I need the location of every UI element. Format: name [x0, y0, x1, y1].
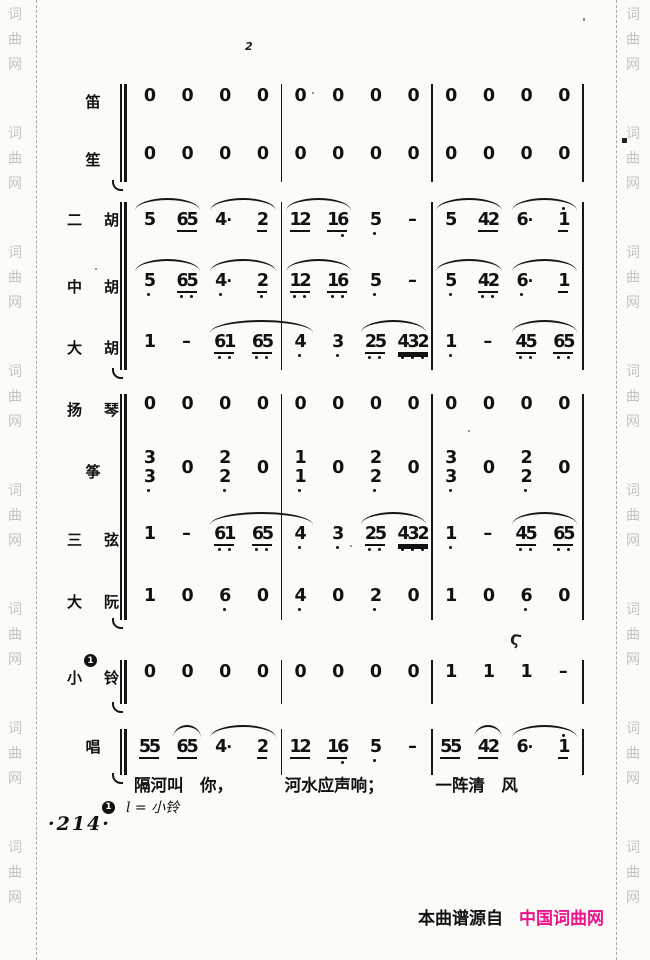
watermark-text: 词 [4, 246, 26, 260]
footer-brand-name: 中国词曲网 [519, 904, 604, 929]
note-digit: 0 [182, 663, 192, 682]
instrument-label-yangqin: 扬琴 [64, 399, 122, 420]
note-group: – [480, 525, 496, 544]
note-group: 65 [177, 738, 197, 759]
note-group: 1 [483, 663, 493, 682]
beat: 0 [318, 449, 356, 494]
bracket-hook [112, 702, 123, 713]
augmentation-dot: · [527, 272, 535, 291]
note-group: 16 [327, 211, 347, 232]
note-group: 5 [144, 211, 154, 230]
note-digit: 0 [219, 87, 229, 106]
beat: 0 [469, 587, 507, 613]
note-group: 0 [408, 449, 418, 487]
beat: 16 [318, 272, 356, 300]
slur-arc [210, 725, 276, 738]
beat: 4 [281, 525, 319, 553]
note-group: 0 [182, 87, 192, 106]
note-group: 0 [182, 663, 192, 682]
note-digit: 0 [370, 395, 380, 414]
beat: 2 [356, 587, 394, 613]
measure: 1–4565 [431, 525, 582, 553]
beat: 0 [394, 145, 432, 171]
note-digit: 6 [517, 272, 527, 291]
note-digit: 0 [521, 145, 531, 164]
staff-group: 扬琴000000000000筝330220110220330220三弦1–616… [60, 394, 590, 620]
note-group: 0 [370, 395, 380, 414]
beat: 4 [281, 333, 319, 361]
note-group: 0 [219, 663, 229, 682]
note-digit: 2 [418, 525, 428, 544]
note-digit: 1 [144, 333, 154, 352]
footnote-marker-badge: 1 [102, 801, 115, 814]
staff-group: 小铃100000000111– [60, 660, 590, 704]
watermark-text: 词 [622, 603, 644, 617]
watermark-text: 曲 [622, 152, 644, 166]
note-group: 65 [252, 525, 272, 546]
slur-arc [210, 320, 313, 333]
slur-arc [512, 198, 578, 211]
beat: 0 [318, 87, 356, 113]
watermark-text: 曲 [4, 509, 26, 523]
note-group: 1 [558, 738, 568, 759]
beat: 0 [243, 87, 281, 113]
watermark-text: 词 [4, 8, 26, 22]
octave-dot-below [223, 489, 226, 492]
slur-arc [210, 198, 276, 211]
beat: 45 [507, 525, 545, 553]
lyrics-measure-2: 河水应声响； [281, 772, 432, 796]
note-digit: 6 [337, 272, 347, 291]
octave-dot-below [557, 548, 560, 551]
note-group: 45 [516, 525, 536, 546]
note-digit: 4 [295, 333, 305, 352]
note-group: 5 [144, 272, 154, 291]
note-group: 3 [144, 449, 154, 468]
note-group: 3 [332, 525, 342, 544]
beat: 65 [544, 525, 582, 553]
staff-group: 唱55654·212165–55426·1 [60, 729, 590, 775]
watermark-text: 曲 [622, 866, 644, 880]
instrument-part-yangqin: 扬琴000000000000 [130, 395, 582, 421]
note-digit: 4 [295, 587, 305, 606]
note-digit: 3 [332, 333, 342, 352]
beat: 0 [130, 145, 168, 171]
beat: 65 [168, 272, 206, 300]
octave-dot-below [520, 293, 523, 296]
note-digit: 5 [375, 333, 385, 352]
note-group: 0 [295, 663, 305, 682]
note-group: 0 [332, 395, 342, 414]
note-digit: 3 [144, 449, 154, 468]
beat: 0 [168, 587, 206, 613]
octave-dot-below [519, 548, 522, 551]
note-digit: 0 [219, 395, 229, 414]
octave-dot-below [449, 546, 452, 549]
slur-arc [474, 725, 502, 738]
slur-arc [135, 198, 201, 211]
watermark-text: 网 [622, 296, 644, 310]
beat: 5 [356, 732, 394, 766]
note-digit: 5 [375, 525, 385, 544]
beat: 1 [431, 525, 469, 553]
measures: 000000000000 [130, 87, 582, 113]
note-digit: 0 [408, 663, 418, 682]
scanned-music-score-page: { "watermark": { "chars": ["词", "曲", "网"… [0, 0, 650, 960]
scan-speck [95, 268, 97, 270]
octave-dot-below [265, 548, 268, 551]
octave-dot-below [373, 489, 376, 492]
note-group: 0 [408, 145, 418, 164]
note-digit: 6 [517, 738, 527, 757]
note-digit: 6 [517, 211, 527, 230]
octave-dot-below [303, 295, 306, 298]
note-group: 0 [408, 587, 418, 606]
note-group: 0 [295, 87, 305, 106]
bracket-hook [112, 368, 123, 379]
slur-arc [512, 320, 578, 333]
beat: – [168, 525, 206, 553]
note-digit: 1 [558, 738, 568, 757]
note-digit: 4 [478, 211, 488, 230]
note-digit: 0 [182, 145, 192, 164]
beat: 0 [243, 395, 281, 421]
beat: 1 [130, 333, 168, 361]
note-group: 0 [558, 87, 568, 106]
note-digit: 0 [332, 87, 342, 106]
note-digit: 1 [327, 272, 337, 291]
note-group: 2 [219, 468, 229, 487]
note-digit: 6 [553, 525, 563, 544]
dash-note: – [179, 525, 195, 544]
beat: 0 [243, 663, 281, 689]
beat: 0 [431, 145, 469, 171]
note-digit: 5 [445, 211, 455, 230]
octave-dot-below [524, 489, 527, 492]
note-digit: 0 [144, 145, 154, 164]
system-opening-line-thick [124, 729, 128, 775]
note-group: 0 [445, 145, 455, 164]
octave-dot-below [411, 548, 414, 551]
note-digit: 0 [219, 145, 229, 164]
note-digit: 5 [440, 738, 450, 757]
watermark-text: 网 [622, 177, 644, 191]
beat: 33 [431, 449, 469, 494]
measure: 0000 [281, 663, 432, 689]
beat: 1 [469, 663, 507, 689]
beat: 0 [431, 87, 469, 113]
note-digit: 0 [257, 663, 267, 682]
beat: 0 [394, 395, 432, 421]
note-digit: 6 [214, 525, 224, 544]
note-digit: 0 [182, 587, 192, 606]
note-group: 42 [478, 272, 498, 293]
beat: 4 [281, 587, 319, 613]
beat: 0 [168, 87, 206, 113]
measure: 0000 [431, 395, 582, 421]
watermark-text: 曲 [4, 628, 26, 642]
note-group: 0 [370, 663, 380, 682]
note-group: 1 [558, 272, 568, 293]
measure: 1060 [431, 587, 582, 613]
note-digit: 0 [295, 663, 305, 682]
note-digit: 6 [177, 738, 187, 757]
measure: 1–6165 [130, 525, 281, 553]
note-digit: 0 [370, 145, 380, 164]
note-digit: 0 [445, 87, 455, 106]
note-group: 16 [327, 272, 347, 293]
note-digit: 1 [144, 525, 154, 544]
note-group: 55 [139, 738, 159, 759]
note-group: 432 [398, 525, 428, 546]
note-group: 0 [408, 395, 418, 414]
watermark-text: 网 [4, 534, 26, 548]
note-digit: 0 [558, 459, 568, 478]
slur-arc [210, 259, 276, 272]
note-digit: 4 [516, 333, 526, 352]
note-group: 0 [257, 587, 267, 606]
note-group: 0 [182, 395, 192, 414]
note-digit: 2 [370, 587, 380, 606]
note-digit: 5 [262, 525, 272, 544]
octave-dot-below [401, 356, 404, 359]
slur-arc [361, 320, 427, 333]
note-digit: 5 [187, 272, 197, 291]
note-digit: 0 [182, 395, 192, 414]
watermark-text: 网 [622, 891, 644, 905]
note-group: – [480, 333, 496, 352]
instrument-label-char: 笙 [85, 149, 100, 170]
note-group: 12 [290, 211, 310, 232]
measure: 0000 [130, 87, 281, 113]
note-digit: 6 [214, 333, 224, 352]
scan-speck [312, 92, 314, 94]
beat: 0 [281, 663, 319, 689]
beat: 0 [130, 663, 168, 689]
octave-dot-below [567, 548, 570, 551]
note-group: 1 [445, 587, 455, 606]
watermark-text: 曲 [622, 390, 644, 404]
note-digit: 4 [215, 738, 225, 757]
note-digit: 0 [257, 459, 267, 478]
measure: 4325432 [281, 525, 432, 553]
instrument-part-erhu: 二胡5654·212165–5426·1 [130, 205, 582, 239]
octave-dot-below [223, 608, 226, 611]
watermark-text: 词 [622, 8, 644, 22]
octave-dot-below [401, 548, 404, 551]
note-digit: 6 [337, 211, 347, 230]
instrument-label-char: 胡 [104, 276, 119, 297]
system-opening-line-thick [124, 84, 128, 182]
scan-speck [622, 138, 627, 143]
slur-arc [436, 259, 502, 272]
instrument-label-char: 大 [67, 337, 82, 358]
octave-dot-below [449, 293, 452, 296]
beat: – [168, 333, 206, 361]
note-group: 0 [370, 145, 380, 164]
instrument-label-erhu: 二胡 [64, 209, 122, 230]
instrument-label-char: 胡 [104, 337, 119, 358]
note-group: 1 [445, 663, 455, 682]
octave-dot-below [557, 356, 560, 359]
watermark-text: 词 [4, 484, 26, 498]
note-digit: 0 [257, 87, 267, 106]
measure: 5426·1 [431, 272, 582, 300]
watermark-text: 词 [622, 841, 644, 855]
watermark-text: 网 [4, 653, 26, 667]
note-digit: 1 [290, 211, 300, 230]
watermark-text: 曲 [622, 628, 644, 642]
note-digit: 4 [478, 738, 488, 757]
note-digit: 4 [295, 525, 305, 544]
beat: 0 [318, 395, 356, 421]
augmentation-dot: · [527, 738, 535, 757]
note-group: 4· [215, 738, 233, 757]
note-digit: 3 [332, 525, 342, 544]
beat: 0 [281, 87, 319, 113]
note-digit: 0 [408, 459, 418, 478]
note-digit: 5 [370, 738, 380, 757]
beat: 1 [130, 525, 168, 553]
note-digit: 0 [408, 145, 418, 164]
note-digit: 6 [219, 587, 229, 606]
instrument-part-zhonghu: 中胡5654·212165–5426·1 [130, 272, 582, 300]
watermark-text: 网 [622, 534, 644, 548]
watermark-text: 词 [4, 365, 26, 379]
footnote-reference-badge: 1 [84, 654, 97, 667]
note-digit: 5 [149, 738, 159, 757]
note-group: 0 [182, 587, 192, 606]
note-group: 0 [295, 395, 305, 414]
slur-arc [512, 725, 578, 738]
note-digit: 0 [144, 395, 154, 414]
end-barline [582, 84, 584, 182]
note-digit: 0 [257, 145, 267, 164]
instrument-part-sanxian: 三弦1–616543254321–4565 [130, 525, 582, 553]
note-group: 0 [445, 87, 455, 106]
note-group: 65 [177, 211, 197, 232]
instrument-label-char: 大 [67, 591, 82, 612]
watermark-text: 网 [622, 415, 644, 429]
note-digit: 4 [215, 211, 225, 230]
note-digit: 5 [144, 272, 154, 291]
measures: 106040201060 [130, 587, 582, 613]
measure: 0000 [281, 395, 432, 421]
beat: 0 [243, 449, 281, 494]
instrument-label-di: 笛 [64, 91, 122, 112]
note-group: 0 [332, 663, 342, 682]
octave-dot-below [218, 356, 221, 359]
beat: 0 [544, 145, 582, 171]
octave-dot-below [373, 759, 376, 762]
note-group: 0 [257, 87, 267, 106]
note-group: – [405, 211, 421, 230]
note-digit: 3 [144, 468, 154, 487]
augmentation-dot: · [527, 211, 535, 230]
note-group: 4· [215, 211, 233, 230]
footnote-text: l = 小铃 [126, 797, 179, 817]
note-digit: 2 [521, 449, 531, 468]
note-digit: 0 [483, 87, 493, 106]
bracket-hook [112, 180, 123, 191]
instrument-label-char: 弦 [104, 529, 119, 550]
note-group: 65 [252, 333, 272, 354]
beat: 0 [469, 449, 507, 494]
slur-arc [436, 198, 502, 211]
beat: 55 [431, 732, 469, 766]
note-digit: 1 [521, 663, 531, 682]
note-group: 0 [370, 87, 380, 106]
scan-artifact-mark: 2 [245, 40, 253, 53]
beat: 6 [205, 587, 243, 613]
note-digit: 0 [144, 663, 154, 682]
note-group: 2 [257, 211, 267, 232]
beat: 3 [318, 525, 356, 553]
instrument-label-char: 小 [67, 667, 82, 688]
note-group: 0 [144, 663, 154, 682]
note-digit: 0 [483, 459, 493, 478]
beat: 12 [281, 272, 319, 300]
note-group: 0 [521, 87, 531, 106]
dash-note: – [405, 211, 421, 230]
note-digit: 5 [144, 211, 154, 230]
note-digit: 5 [563, 525, 573, 544]
note-group: 0 [483, 449, 493, 487]
note-digit: 5 [187, 738, 197, 757]
note-digit: 1 [327, 211, 337, 230]
left-dashed-rule [36, 0, 37, 960]
instrument-label-daruan: 大阮 [64, 591, 122, 612]
note-digit: 4 [516, 525, 526, 544]
octave-dot-below [293, 295, 296, 298]
note-digit: 2 [488, 272, 498, 291]
note-group: 0 [521, 145, 531, 164]
measures: 330220110220330220 [130, 449, 582, 494]
note-digit: 5 [139, 738, 149, 757]
note-group: 6· [517, 272, 535, 291]
instrument-label-char: 铃 [104, 667, 119, 688]
instrument-label-char: 阮 [104, 591, 119, 612]
beat: – [469, 525, 507, 553]
slur-arc [361, 512, 427, 525]
note-group: 5 [445, 272, 455, 291]
measure: 1–6165 [130, 333, 281, 361]
note-digit: 2 [488, 211, 498, 230]
note-digit: 0 [521, 395, 531, 414]
note-digit: 6 [553, 333, 563, 352]
slur-arc [286, 198, 352, 211]
measure: 0000 [130, 395, 281, 421]
note-digit: 6 [252, 333, 262, 352]
note-group: 2 [370, 587, 380, 606]
beat: 11 [281, 449, 319, 494]
note-group: 4 [295, 333, 305, 352]
note-digit: 0 [408, 587, 418, 606]
bracket-hook [112, 618, 123, 629]
note-group: – [405, 738, 421, 757]
watermark-text: 曲 [4, 866, 26, 880]
note-digit: 0 [295, 145, 305, 164]
watermark-text: 词 [4, 603, 26, 617]
beat: 432 [394, 525, 432, 553]
note-digit: 4 [398, 333, 408, 352]
note-digit: 0 [144, 87, 154, 106]
footer-credit-prefix: 本曲谱源自 [418, 904, 503, 929]
note-digit: 3 [408, 525, 418, 544]
beat: 0 [356, 145, 394, 171]
octave-dot-below [524, 608, 527, 611]
note-digit: 5 [526, 525, 536, 544]
